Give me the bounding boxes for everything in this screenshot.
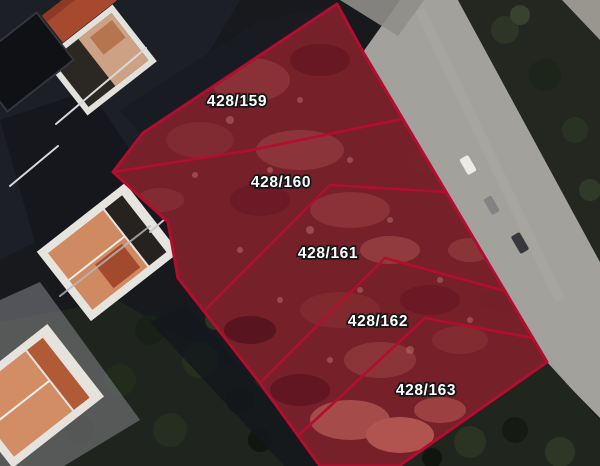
map-frame: 428/159 428/160 428/161 428/162 428/163 — [0, 0, 600, 466]
parcel-label-428-160[interactable]: 428/160 — [251, 174, 311, 191]
parcel-label-428-162[interactable]: 428/162 — [348, 313, 408, 330]
satellite-map-view[interactable]: 428/159 428/160 428/161 428/162 428/163 — [0, 0, 600, 466]
parcel-label-428-159[interactable]: 428/159 — [207, 93, 267, 110]
parcel-label-428-163[interactable]: 428/163 — [396, 382, 456, 399]
parcel-label-428-161[interactable]: 428/161 — [298, 245, 358, 262]
